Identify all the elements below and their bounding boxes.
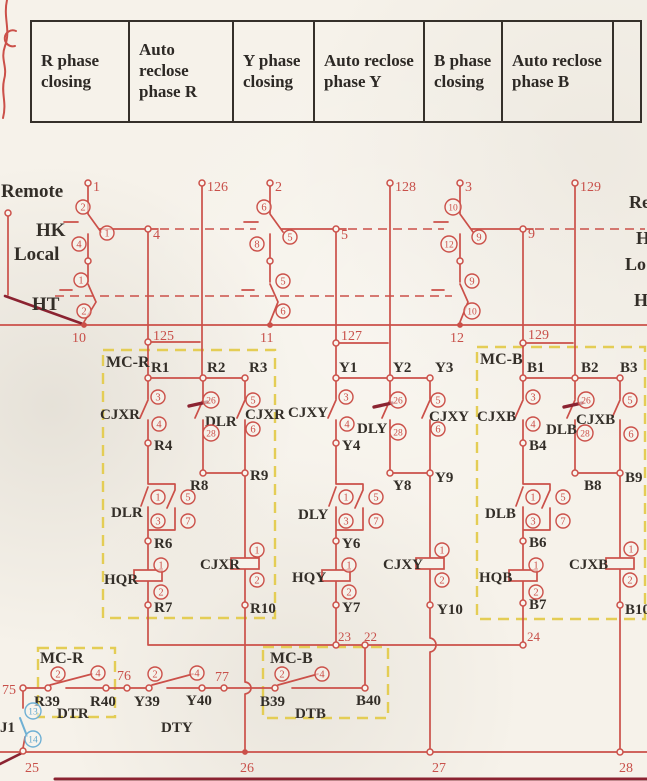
pin-number: 7 [560,517,565,528]
label-right_edge-remote: Re [629,192,647,212]
terminal-node [617,602,623,608]
terminal-node [272,685,278,691]
terminal-node [145,339,151,345]
pin-circle-p2: 2 [154,585,168,599]
pin-circle-p2: 2 [623,573,637,587]
pin-number: 5 [435,396,440,407]
label-mcr-r1: R1 [151,360,169,376]
pin-number: 1 [254,546,259,557]
label-mcb-b2: B2 [581,360,599,376]
pin-circle-p5: 5 [431,393,445,407]
pin-circle-p28: 28 [390,424,406,440]
label-terminals-n23: 23 [338,629,351,644]
terminal-node [85,258,91,264]
pin-circle-p2: 2 [435,573,449,587]
label-mcy-y3: Y3 [435,360,453,376]
pin-circle-p1: 1 [74,273,88,287]
pin-circle-p13: 13 [25,703,41,719]
pin-number: 5 [287,233,292,244]
pin-number: 1 [78,276,83,287]
label-terminals-t1: 1 [93,180,100,195]
pin-number: 1 [530,493,535,504]
pin-number: 7 [373,517,378,528]
pin-circle-p1: 1 [151,490,165,504]
pin-number: 10 [467,308,477,318]
label-bottom-y40: Y40 [186,693,212,709]
pin-number: 2 [81,307,86,318]
mechanical-link-lines [55,229,645,296]
label-mcr-r9: R9 [250,468,268,484]
maroon-dash [374,403,392,407]
maroon-stroke [0,752,24,764]
label-bottom-dty: DTY [161,720,193,736]
pin-number: 12 [444,241,454,251]
terminal-node [124,685,130,691]
scanned-schematic-page: R phase closing Auto reclose phase R Y p… [0,0,647,781]
terminal-node [199,180,205,186]
label-terminals-t2: 2 [275,180,282,195]
label-mcr-r3: R3 [249,360,267,376]
pin-circle-p6: 6 [246,422,260,436]
pin-number: 4 [319,670,325,681]
pin-circle-p2: 2 [342,585,356,599]
label-terminals-n26: 26 [240,761,254,776]
terminal-node [520,600,526,606]
terminal-node [520,375,526,381]
terminal-node [427,470,433,476]
pin-number: 26 [393,397,403,407]
pin-number: 1 [628,545,633,556]
pin-number: 2 [627,576,632,587]
pin-circle-p4: 4 [152,417,166,431]
pin-number: 6 [628,430,633,441]
junction-dot [457,322,463,328]
terminal-node [387,470,393,476]
pin-number: 3 [530,517,535,528]
junction-dot [267,322,273,328]
label-terminals-t3: 3 [465,180,472,195]
pin-number: 5 [560,493,565,504]
label-mcr-r6: R6 [154,536,173,552]
pin-number: 13 [28,708,38,718]
terminal-node [520,642,526,648]
label-mcb-b8: B8 [584,478,602,494]
pin-circle-p2: 2 [148,667,162,681]
pin-circle-p4: 4 [526,417,540,431]
junction-dot [81,322,87,328]
label-terminals-t76: 76 [117,669,131,684]
pin-number: 1 [104,229,109,240]
pin-circle-p5: 5 [181,490,195,504]
label-mcr-cjx3: CJXR [200,557,240,573]
pin-circle-p6: 6 [257,200,271,214]
label-terminals-n25: 25 [25,761,39,776]
terminal-node [45,685,51,691]
terminal-node [200,375,206,381]
pin-number: 1 [155,493,160,504]
pin-number: 6 [261,203,266,214]
terminal-node [242,602,248,608]
label-mcb-b9: B9 [625,470,643,486]
pin-circle-p3: 3 [339,390,353,404]
pin-number: 3 [343,517,348,528]
pin-circle-p1: 1 [526,490,540,504]
label-bottom-b39: B39 [260,694,285,710]
pin-number: 10 [448,204,458,214]
label-bottom-kj1: J1 [0,720,15,736]
terminal-node [333,340,339,346]
label-mcb-b1: B1 [527,360,545,376]
label-terminals-t75: 75 [2,683,16,698]
pin-number: 5 [627,396,632,407]
label-mcb-hq: HQB [479,570,512,586]
pin-circle-p3: 3 [526,514,540,528]
pin-circle-p7: 7 [181,514,195,528]
label-mcy-dl1: DLY [357,421,387,437]
pin-circle-p14: 14 [25,731,41,747]
terminal-node [5,210,11,216]
label-mcy-y2: Y2 [393,360,411,376]
pin-number: 28 [206,430,216,440]
label-right_edge-local: Lo [625,254,646,274]
label-mcr-r2: R2 [207,360,225,376]
relay-schematic: RemoteHKLocalHTReHLoHMC-RMC-BR1R2R3Y1Y2Y… [0,0,647,781]
pin-number: 1 [343,493,348,504]
label-terminals-t129b: 129 [528,328,549,343]
label-mcy-y6: Y6 [342,536,361,552]
pin-number: 2 [80,203,85,214]
terminal-node [267,180,273,186]
terminal-node [427,375,433,381]
pin-circle-p4: 4 [91,666,105,680]
pin-number: 26 [581,397,591,407]
pin-number: 2 [158,588,163,599]
label-mcr-r10: R10 [250,601,276,617]
pin-circle-p3: 3 [526,390,540,404]
label-mcy-y10: Y10 [437,602,463,618]
terminal-node [617,470,623,476]
label-terminals-n11: 11 [260,331,273,346]
terminal-node [221,685,227,691]
pin-number: 28 [580,430,590,440]
pin-circle-p1: 1 [154,558,168,572]
label-mcy-cjx1: CJXY [288,405,328,421]
label-terminals-t129: 129 [580,180,601,195]
pin-number: 5 [280,277,285,288]
pin-circle-p10: 10 [464,303,480,319]
pin-circle-p28: 28 [203,425,219,441]
pin-circle-p9: 9 [472,230,486,244]
pin-circle-p8: 8 [250,237,264,251]
label-terminals-n22: 22 [364,629,377,644]
label-switch_labels-ht: HT [32,294,60,315]
label-switch_labels-remote: Remote [1,181,63,202]
label-mcb-b4: B4 [529,438,547,454]
terminal-node [572,375,578,381]
pin-number: 2 [533,588,538,599]
label-terminals-n28: 28 [619,761,633,776]
pin-circle-p2: 2 [275,667,289,681]
pin-number: 5 [250,396,255,407]
pin-number: 3 [343,393,348,404]
label-terminals-n24: 24 [527,629,541,644]
pin-number: 8 [254,240,259,251]
label-mcr-r7: R7 [154,600,173,616]
pin-circle-p5: 5 [623,393,637,407]
label-right_edge-ht: H [634,290,647,310]
label-bottom-b40: B40 [356,693,381,709]
label-mcb-dl2: DLB [485,506,516,522]
pin-circle-p1: 1 [100,226,114,240]
pin-number: 9 [476,233,481,244]
pin-circle-p1: 1 [250,543,264,557]
label-mcr-r4: R4 [154,438,173,454]
pin-circle-p1: 1 [342,558,356,572]
pin-number: 2 [55,670,60,681]
label-bottom-mcr_name: MC-R [40,650,84,667]
pin-circle-p28: 28 [577,425,593,441]
pin-circle-p2: 2 [51,667,65,681]
pin-circle-p1: 1 [435,543,449,557]
pin-circle-p3: 3 [151,514,165,528]
terminal-node [572,180,578,186]
label-mcy-y1: Y1 [339,360,357,376]
label-terminals-t77: 77 [215,670,229,685]
pin-number: 6 [435,425,440,436]
pin-circle-p5: 5 [246,393,260,407]
terminal-node [267,258,273,264]
pin-circle-p6: 6 [624,427,638,441]
pin-circle-p1: 1 [339,490,353,504]
pin-number-circles: 2165109412856129103426285613571212342628… [25,199,638,747]
pin-circle-p1: 1 [624,542,638,556]
pin-number: 26 [206,397,216,407]
junction-dot [242,749,248,755]
pin-circle-p2: 2 [529,585,543,599]
pin-circle-p3: 3 [151,390,165,404]
label-mcy-y7: Y7 [342,600,361,616]
label-terminals-n9: 9 [528,227,535,242]
terminal-node [333,440,339,446]
pin-number: 3 [530,393,535,404]
pin-number: 2 [279,670,284,681]
terminal-node [362,685,368,691]
pin-circle-p5: 5 [283,230,297,244]
label-mcy-dl2: DLY [298,507,328,523]
pin-number: 5 [185,493,190,504]
pin-number: 5 [373,493,378,504]
pin-number: 1 [439,546,444,557]
terminal-node [617,749,623,755]
pin-number: 1 [533,561,538,572]
pin-circle-p1: 1 [529,558,543,572]
terminal-node [20,748,26,754]
terminal-node [242,375,248,381]
label-mcr-dl2: DLR [111,505,143,521]
label-mcb-b3: B3 [620,360,638,376]
pin-circle-p26: 26 [578,392,594,408]
label-mcb-name: MC-B [480,351,523,368]
label-switch_labels-local: Local [14,244,59,265]
pin-circle-p5: 5 [369,490,383,504]
pin-circle-p3: 3 [339,514,353,528]
pin-circle-p2: 2 [77,304,91,318]
pin-number: 4 [95,669,101,680]
terminal-node [85,180,91,186]
pin-circle-p5: 5 [556,490,570,504]
pin-circle-p5: 5 [276,274,290,288]
terminal-node [427,602,433,608]
terminal-node [20,685,26,691]
schematic-labels: RemoteHKLocalHTReHLoHMC-RMC-BR1R2R3Y1Y2Y… [0,180,647,776]
pin-number: 4 [194,669,200,680]
pin-number: 2 [439,576,444,587]
pin-number: 1 [346,561,351,572]
terminal-node [333,602,339,608]
label-bottom-y39: Y39 [134,694,160,710]
terminal-node [333,538,339,544]
pin-circle-p12: 12 [441,236,457,252]
label-mcr-cjx2: CJXR [245,407,285,423]
label-bottom-r40: R40 [90,694,116,710]
pin-circle-p7: 7 [556,514,570,528]
terminal-node [520,440,526,446]
terminal-node [520,226,526,232]
label-bottom-dtb: DTB [295,706,326,722]
label-terminals-t128: 128 [395,180,416,195]
label-mcb-cjx1: CJXB [477,409,516,425]
pin-number: 6 [250,425,255,436]
pin-number: 9 [469,277,474,288]
pin-number: 4 [344,420,350,431]
pin-number: 3 [155,517,160,528]
pin-circle-p2: 2 [76,200,90,214]
blue-stroke [20,718,27,736]
label-mcb-cjx3: CJXB [569,557,608,573]
pin-circle-p6: 6 [431,422,445,436]
pin-circle-p4: 4 [315,667,329,681]
label-right_edge-hk: H [636,228,647,248]
label-terminals-n5: 5 [341,228,348,243]
terminal-node [520,538,526,544]
label-mcy-hq: HQY [292,570,326,586]
label-terminals-n4: 4 [153,228,160,243]
label-switch_labels-hk: HK [36,220,66,241]
pin-circle-p7: 7 [369,514,383,528]
pin-number: 6 [280,307,285,318]
pin-circle-p10: 10 [445,199,461,215]
label-mcb-b6: B6 [529,535,547,551]
pin-number: 14 [28,736,38,746]
pin-number: 4 [530,420,536,431]
terminal-node [457,258,463,264]
pin-number: 2 [346,588,351,599]
label-mcb-b10: B10 [625,602,647,618]
terminal-node [146,685,152,691]
label-mcr-cjx1: CJXR [100,407,140,423]
pin-circle-p4: 4 [340,417,354,431]
terminal-node [145,440,151,446]
terminal-node [333,226,339,232]
label-bottom-mcb_name: MC-B [270,650,313,667]
label-bottom-dtr: DTR [57,706,89,722]
label-mcy-cjx3: CJXY [383,557,423,573]
cjxb-coil [606,558,634,569]
label-mcb-dl1: DLB [546,422,577,438]
pin-number: 2 [254,576,259,587]
terminal-node [200,470,206,476]
handwritten-mark [3,0,16,118]
pin-circle-p26: 26 [390,392,406,408]
pin-circle-p4: 4 [190,666,204,680]
label-mcy-y8: Y8 [393,478,411,494]
label-mcy-y9: Y9 [435,470,453,486]
pin-number: 4 [76,240,82,251]
pin-circle-p2: 2 [250,573,264,587]
terminal-node [242,470,248,476]
pin-number: 2 [152,670,157,681]
pin-circle-p26: 26 [203,392,219,408]
terminal-node [103,685,109,691]
terminal-node [457,180,463,186]
label-mcy-y4: Y4 [342,438,361,454]
label-mcr-hq: HQR [104,572,138,588]
pin-circle-p4: 4 [72,237,86,251]
terminal-node [387,180,393,186]
label-mcr-name: MC-R [106,354,150,371]
label-terminals-t125: 125 [153,329,174,344]
pin-number: 1 [158,561,163,572]
pin-number: 4 [156,420,162,431]
pin-number: 28 [393,429,403,439]
label-terminals-n12: 12 [450,331,464,346]
pin-circle-p6: 6 [276,304,290,318]
label-terminals-n10: 10 [72,331,86,346]
pin-number: 7 [185,517,190,528]
pin-number: 3 [155,393,160,404]
terminal-node [427,749,433,755]
terminal-node [145,538,151,544]
terminal-node [145,602,151,608]
label-terminals-n27: 27 [432,761,446,776]
label-terminals-t127: 127 [341,329,362,344]
terminal-node [199,685,205,691]
terminal-node [145,226,151,232]
pin-circle-p9: 9 [465,274,479,288]
terminal-node [572,470,578,476]
terminal-node [520,340,526,346]
label-terminals-t126: 126 [207,180,228,195]
